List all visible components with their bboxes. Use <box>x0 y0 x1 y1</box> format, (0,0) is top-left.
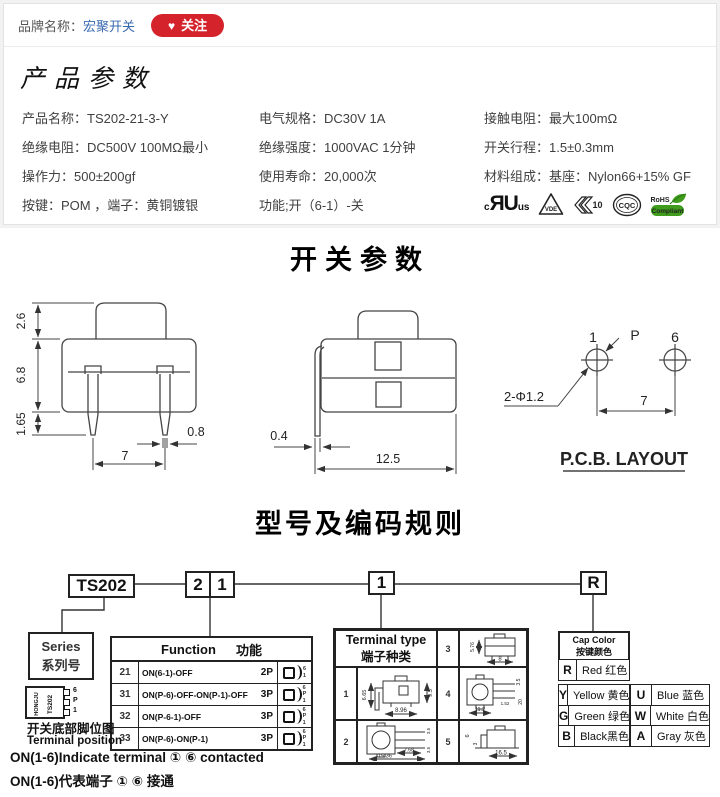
terminal-header-zh: 端子种类 <box>361 649 411 666</box>
product-params-title: 产品参数 <box>4 47 716 99</box>
svg-text:12.5: 12.5 <box>376 452 400 466</box>
svg-text:6: 6 <box>465 734 471 737</box>
svg-text:7.68: 7.68 <box>404 748 414 754</box>
svg-text:9.5: 9.5 <box>428 689 434 697</box>
svg-text:11.2: 11.2 <box>475 707 485 713</box>
svg-text:2.6: 2.6 <box>14 312 28 329</box>
function-row-21: 21 ON(6-1)-OFF2P 61 <box>112 662 311 683</box>
switch-params-title: 开关参数 <box>0 238 720 277</box>
terminal-position-chip: HONGJU TS202 <box>25 686 65 719</box>
page-top-area: 品牌名称： 宏聚开关 ♥ 关注 产品参数 产品名称：TS202-21-3-Y 电… <box>0 0 720 228</box>
terminal-drawing-5: 6 3 16.5 <box>459 720 527 763</box>
chip-pin-p <box>63 699 70 706</box>
cap-color-header: Cap Color 按键颜色 <box>558 631 630 661</box>
svg-text:7: 7 <box>122 449 129 463</box>
code-box-terminal: 1 <box>368 571 395 595</box>
terminal-drawing-2: 3.5 3.5 7.68 15.36 <box>357 720 437 763</box>
cap-color-header-en: Cap Color <box>572 634 615 646</box>
svg-text:6.8: 6.8 <box>14 366 28 383</box>
terminal-table-header: Terminal type 端子种类 <box>335 630 437 667</box>
svg-text:0.8: 0.8 <box>187 425 204 439</box>
chip-pin-label-6: 6 <box>73 687 77 694</box>
vde-certification-icon: VDE <box>538 192 564 217</box>
footnote-line-2: ON(1-6)代表端子 ① ⑥ 接通 <box>10 770 174 790</box>
param-travel: 开关行程：1.5±0.3mm <box>484 137 716 156</box>
terminal-num-5: 5 <box>437 720 459 763</box>
svg-text:20: 20 <box>518 699 524 705</box>
svg-text:RoHS: RoHS <box>650 197 669 204</box>
param-product-name: 产品名称：TS202-21-3-Y <box>22 108 259 127</box>
chip-pin-label-p: P <box>73 697 78 704</box>
svg-text:1.52: 1.52 <box>501 701 510 706</box>
svg-text:3.5: 3.5 <box>426 746 431 753</box>
pcb-layout-drawing: 1 P 6 2-Φ1.2 7 P.C.B. LAYOUT <box>478 288 720 493</box>
code-box-series: TS202 <box>68 574 135 598</box>
svg-text:2-Φ1.2: 2-Φ1.2 <box>504 389 544 404</box>
rohs-certification-icon: RoHS Compliant <box>650 192 688 218</box>
function-table-header: Function 功能 <box>112 638 311 662</box>
svg-text:Compliant: Compliant <box>651 208 684 215</box>
terminal-num-2: 2 <box>335 720 357 763</box>
function-desc: ON(6-1)-OFF <box>142 668 193 678</box>
param-dielectric-strength: 绝缘强度：1000VAC 1分钟 <box>259 137 484 156</box>
chip-pin-6 <box>63 689 70 696</box>
function-desc: ON(P-6-1)-OFF <box>142 712 201 722</box>
side-view-drawing: 0.4 12.5 <box>238 288 478 493</box>
svg-text:8.96: 8.96 <box>395 708 407 714</box>
svg-text:6: 6 <box>671 329 679 345</box>
code-box-color: R <box>580 571 607 595</box>
cap-color-row-red: R Red 红色 <box>558 659 630 681</box>
param-function: 功能;开（6-1）-关 <box>259 195 484 214</box>
brand-bar: 品牌名称： 宏聚开关 ♥ 关注 <box>4 4 716 43</box>
function-poles: 3P <box>261 689 273 700</box>
product-card: 品牌名称： 宏聚开关 ♥ 关注 产品参数 产品名称：TS202-21-3-Y 电… <box>3 3 717 225</box>
brand-label: 品牌名称： <box>18 16 83 35</box>
param-operating-force: 操作力：500±200gf <box>22 166 259 185</box>
function-row-31: 31 ON(P-6)-OFF-ON(P-1)-OFF3P 6P1 <box>112 683 311 705</box>
follow-label: 关注 <box>181 19 207 32</box>
param-electrical-rating: 电气规格：DC30V 1A <box>259 108 484 127</box>
cap-color-row-green: G Green 绿色 <box>558 705 630 727</box>
brand-link[interactable]: 宏聚开关 <box>83 16 135 35</box>
front-view-drawing: 2.6 6.8 1.65 0.8 7 <box>0 288 238 493</box>
svg-text:1: 1 <box>589 329 597 345</box>
code-box-function: 2 1 <box>185 571 235 598</box>
svg-text:15.36: 15.36 <box>378 754 392 760</box>
chip-pin-label-1: 1 <box>73 707 77 714</box>
svg-text:6.65: 6.65 <box>362 690 368 701</box>
function-table: Function 功能 21 ON(6-1)-OFF2P 61 31 ON(P-… <box>110 636 313 751</box>
svg-text:10: 10 <box>592 200 602 210</box>
terminal-type-table: Terminal type 端子种类 3 5.76 8 1 <box>333 628 529 765</box>
cap-color-row-yellow: Y Yellow 黄色 <box>558 684 630 706</box>
cap-color-row-white: W White 白色 <box>630 705 710 727</box>
function-desc: ON(P-6)-OFF-ON(P-1)-OFF <box>142 690 248 700</box>
function-desc: ON(P-6)-ON(P-1) <box>142 734 208 744</box>
svg-text:VDE: VDE <box>544 207 556 213</box>
svg-text:3.5: 3.5 <box>426 727 431 734</box>
cap-color-row-blue: U Blue 蓝色 <box>630 684 710 706</box>
function-row-33: 33 ON(P-6)-ON(P-1)3P 6P1 <box>112 727 311 749</box>
function-header-en: Function <box>161 642 216 657</box>
svg-text:5.76: 5.76 <box>470 642 476 652</box>
terminal-position-title-en: Terminal position <box>27 735 122 747</box>
technical-drawings: 2.6 6.8 1.65 0.8 7 0.4 12.5 <box>0 288 720 493</box>
svg-text:3: 3 <box>473 742 479 745</box>
function-poles: 3P <box>261 711 273 722</box>
footnote-line-1: ON(1-6)Indicate terminal ① ⑥ contacted <box>10 750 264 766</box>
code-function-digit-2: 1 <box>209 573 233 596</box>
function-code: 31 <box>112 684 139 705</box>
cap-color-row-black: B Black黑色 <box>558 725 630 747</box>
svg-text:P: P <box>630 327 639 343</box>
function-row-32: 32 ON(P-6-1)-OFF3P 6P1 <box>112 705 311 727</box>
pinout-icon: 6P1 <box>277 728 311 749</box>
param-material: 材料组成：基座：Nylon66+15% GF <box>484 166 716 185</box>
ul-certification-icon: cЯUus <box>484 196 530 213</box>
certification-logos: cЯUus VDE 10 CQC RoH <box>484 188 716 222</box>
function-poles: 2P <box>261 667 273 678</box>
terminal-num-4: 4 <box>437 667 459 720</box>
heart-icon: ♥ <box>168 20 175 32</box>
cap-color-row-gray: A Gray 灰色 <box>630 725 710 747</box>
coding-rules-title: 型号及编码规则 <box>0 502 720 541</box>
terminal-header-en: Terminal type <box>346 632 426 649</box>
terminal-drawing-3: 5.76 8 <box>459 630 527 667</box>
coding-diagram: TS202 2 1 1 R Series 系列号 Function 功能 21 … <box>0 558 720 797</box>
function-poles: 3P <box>261 733 273 744</box>
param-insulation-resistance: 绝缘电阻：DC500V 100MΩ最小 <box>22 137 259 156</box>
series-label-box: Series 系列号 <box>28 632 94 680</box>
svg-text:P.C.B. LAYOUT: P.C.B. LAYOUT <box>560 449 688 469</box>
svg-text:3.5: 3.5 <box>516 678 522 685</box>
function-header-zh: 功能 <box>236 640 262 659</box>
chip-pin-1 <box>63 709 70 716</box>
terminal-drawing-4: 3.5 1.52 20 11.2 <box>459 667 527 720</box>
terminal-drawing-1: 6.65 9.5 8.96 <box>357 667 437 720</box>
param-contact-resistance: 接触电阻：最大100mΩ <box>484 108 716 127</box>
series-en: Series <box>41 637 80 657</box>
chip-brand-text: HONGJU <box>34 692 40 716</box>
chip-model-text: TS202 <box>47 695 54 714</box>
cap-color-header-zh: 按键颜色 <box>576 646 612 658</box>
series-zh: 系列号 <box>41 656 80 676</box>
svg-text:CQC: CQC <box>618 201 635 210</box>
param-life: 使用寿命：20,000次 <box>259 166 484 185</box>
function-code: 32 <box>112 706 139 727</box>
product-params-grid: 产品名称：TS202-21-3-Y 电气规格：DC30V 1A 接触电阻：最大1… <box>4 99 716 219</box>
enec-certification-icon: 10 <box>572 194 604 216</box>
terminal-num-3: 3 <box>437 630 459 667</box>
pinout-icon: 6P1 <box>277 684 311 705</box>
param-key-terminal: 按键：POM ，端子：黄铜镀银 <box>22 195 259 214</box>
terminal-num-1: 1 <box>335 667 357 720</box>
pinout-icon: 61 <box>277 662 311 683</box>
svg-text:16.5: 16.5 <box>495 751 507 757</box>
follow-button[interactable]: ♥ 关注 <box>151 14 224 37</box>
svg-text:1.65: 1.65 <box>14 412 28 436</box>
svg-text:7: 7 <box>640 393 647 408</box>
pinout-icon: 6P1 <box>277 706 311 727</box>
svg-text:0.4: 0.4 <box>270 429 287 443</box>
cqc-certification-icon: CQC <box>612 193 642 217</box>
function-code: 21 <box>112 662 139 683</box>
code-function-digit-1: 2 <box>187 573 209 596</box>
